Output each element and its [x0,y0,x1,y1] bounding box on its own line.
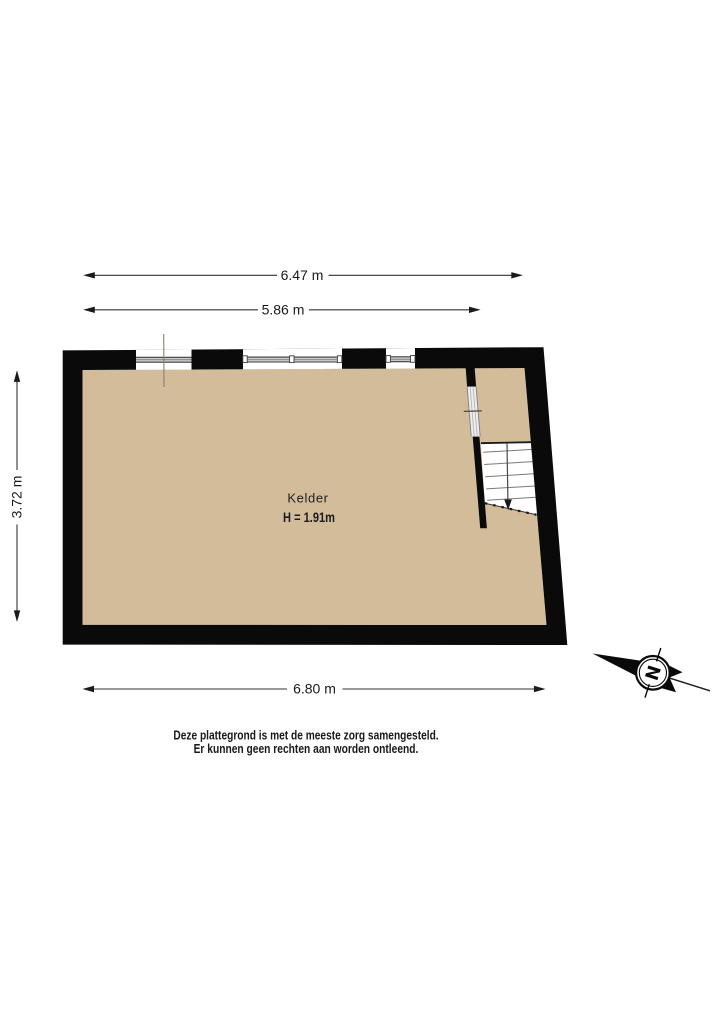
svg-text:6.80 m: 6.80 m [293,681,336,697]
svg-text:3.72 m: 3.72 m [9,476,25,519]
svg-text:Kelder: Kelder [287,490,328,505]
svg-text:H = 1.91m: H = 1.91m [283,510,335,525]
svg-text:5.86 m: 5.86 m [262,302,305,318]
svg-text:6.47 m: 6.47 m [281,267,324,283]
svg-text:Deze plattegrond is met de mee: Deze plattegrond is met de meeste zorg s… [173,730,438,743]
svg-text:Er kunnen geen rechten aan wor: Er kunnen geen rechten aan worden ontlee… [194,743,419,756]
